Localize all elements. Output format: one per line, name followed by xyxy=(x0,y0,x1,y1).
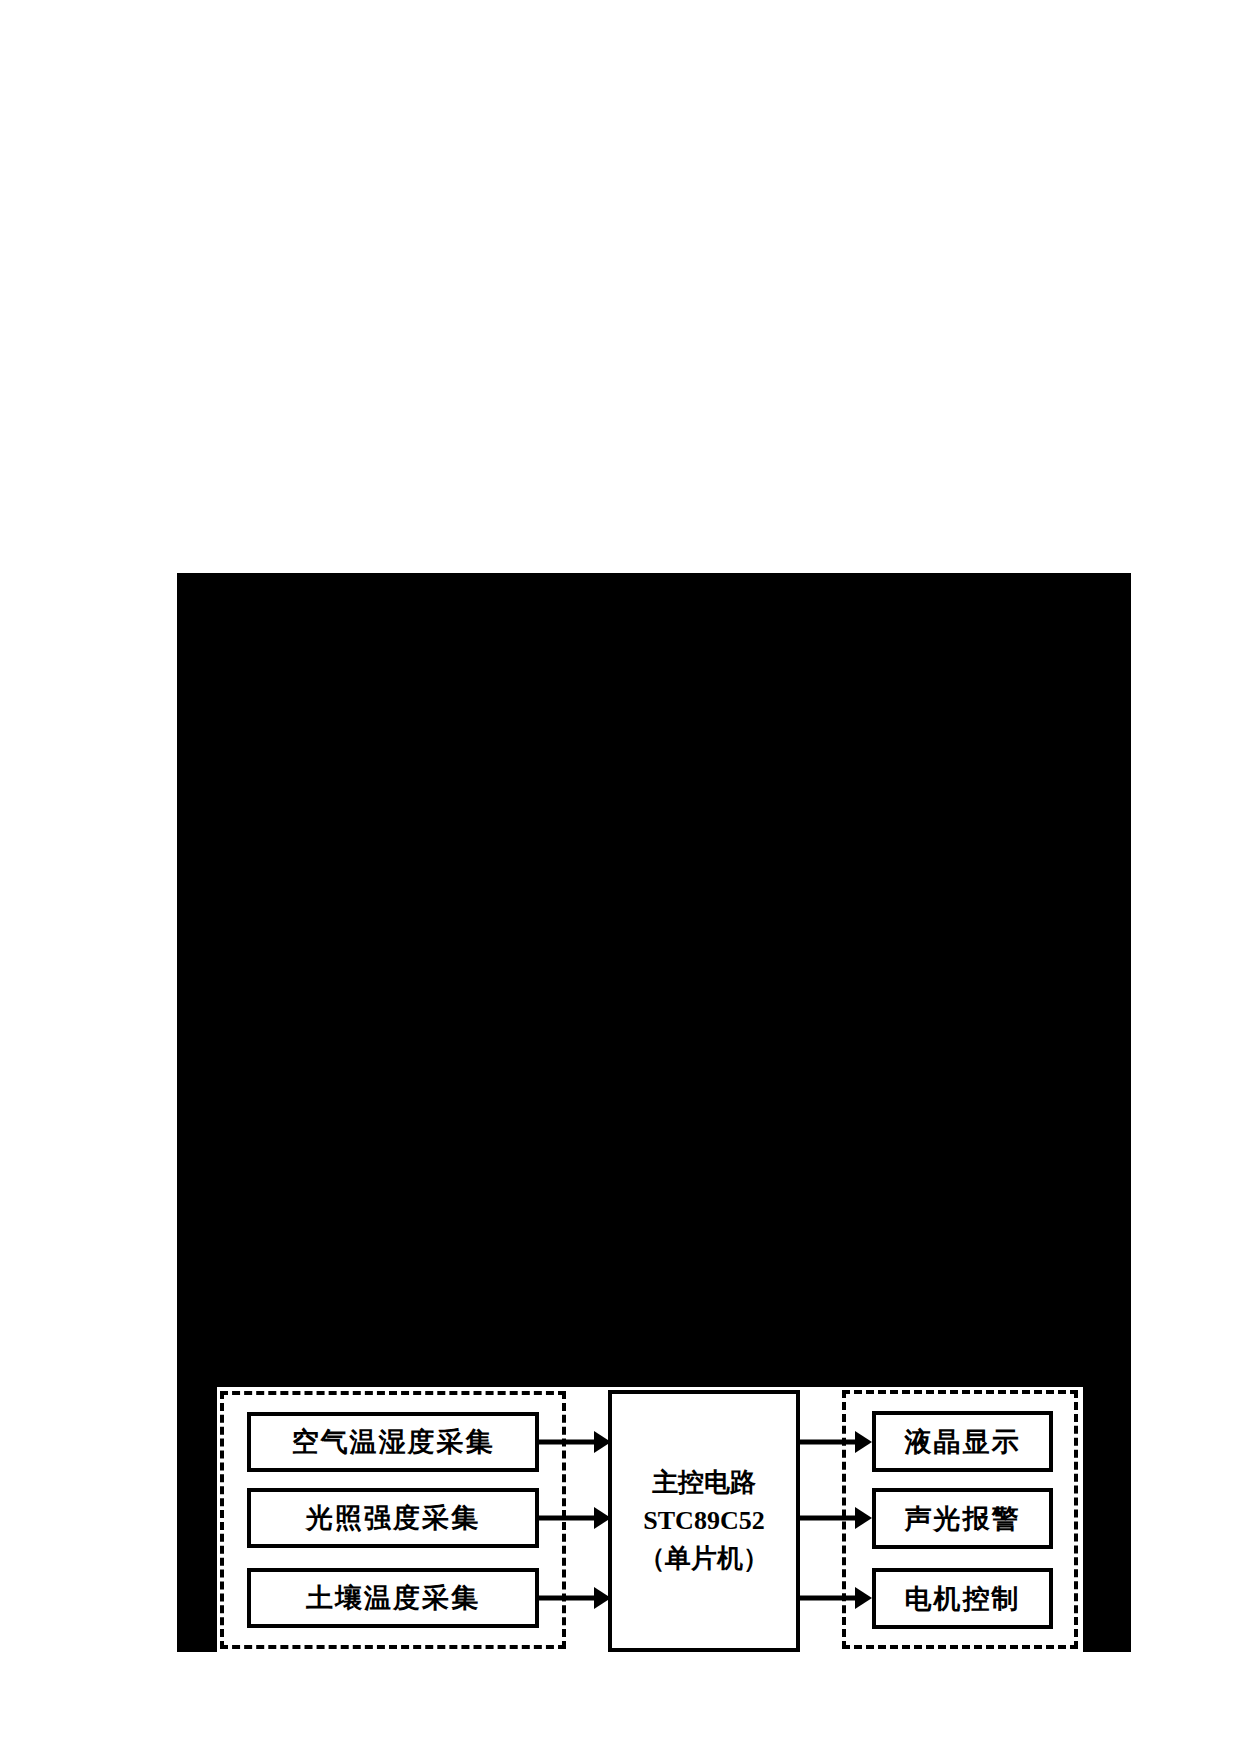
block-light-intensity-collection: 光照强度采集 xyxy=(247,1488,539,1548)
block-sound-light-alarm: 声光报警 xyxy=(872,1488,1053,1549)
block-label: 液晶显示 xyxy=(905,1424,1021,1460)
block-label: 电机控制 xyxy=(905,1581,1021,1617)
block-air-temp-humidity-collection: 空气温湿度采集 xyxy=(247,1412,539,1472)
block-label: 光照强度采集 xyxy=(306,1500,480,1536)
block-lcd-display: 液晶显示 xyxy=(872,1411,1053,1472)
block-main-control-stc89c52: 主控电路 STC89C52 （单片机） xyxy=(608,1390,800,1652)
block-label: 空气温湿度采集 xyxy=(292,1424,495,1460)
center-block-line-1: 主控电路 xyxy=(652,1464,756,1502)
block-soil-temperature-collection: 土壤温度采集 xyxy=(247,1568,539,1628)
center-block-line-3: （单片机） xyxy=(639,1540,769,1578)
center-block-line-2: STC89C52 xyxy=(643,1502,764,1540)
block-label: 声光报警 xyxy=(905,1501,1021,1537)
block-motor-control: 电机控制 xyxy=(872,1568,1053,1629)
document-page: 空气温湿度采集 光照强度采集 土壤温度采集 主控电路 STC89C52 （单片机… xyxy=(0,0,1240,1754)
block-label: 土壤温度采集 xyxy=(306,1580,480,1616)
